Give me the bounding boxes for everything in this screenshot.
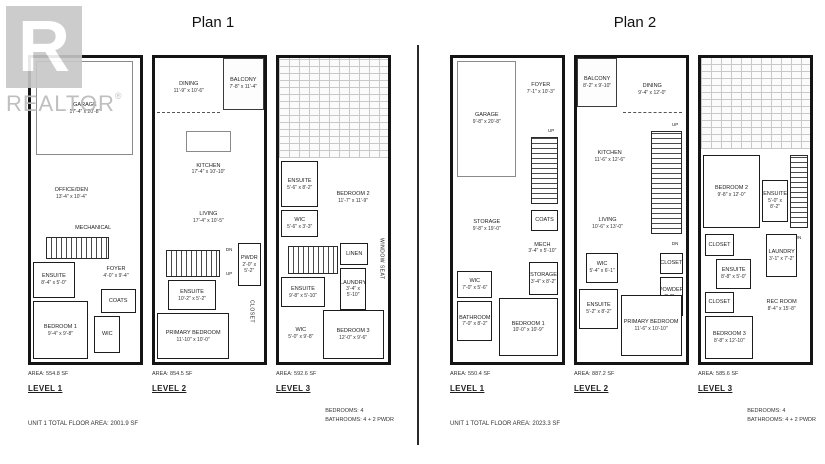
room-dimensions: 7'-8" x 11'-4"	[229, 84, 257, 90]
room-bathroom: BATHROOM7'-0" x 8'-2"	[457, 301, 492, 341]
room-foyer: FOYER7'-1" x 10'-3"	[523, 70, 559, 106]
room-label: FOYER	[107, 266, 126, 273]
roof-hatch	[701, 58, 810, 149]
room-label: COATS	[535, 217, 554, 224]
plan1-bedrooms: BEDROOMS: 4	[325, 407, 394, 416]
room-dimensions: 9'-4" x 9'-8"	[48, 331, 73, 337]
room-label: MECHANICAL	[75, 225, 111, 232]
plan2-level3-column: BEDROOM 29'-8" x 12'-0"ENSUITE5'-0" x 8'…	[698, 55, 813, 393]
stairs	[288, 246, 338, 273]
room-closet: CLOSET	[705, 292, 733, 313]
room-dimensions: 3'-4" x 5'-10"	[528, 248, 556, 254]
room-laundry: LAUNDRY3'-1" x 7'-2"	[766, 234, 797, 277]
room-label: LIVING	[598, 217, 616, 224]
room-label: OFFICE/DEN	[55, 187, 88, 194]
plan1-total-area: UNIT 1 TOTAL FLOOR AREA: 2001.9 SF	[28, 421, 138, 427]
room-label: REC ROOM	[767, 299, 797, 306]
room-label: UP	[548, 128, 554, 134]
room-dn: DN	[223, 243, 236, 255]
room-dimensions: 8'-2" x 9'-10"	[583, 83, 611, 89]
plan2-level3-floorplan: BEDROOM 29'-8" x 12'-0"ENSUITE5'-0" x 8'…	[698, 55, 813, 365]
room-dimensions: 11'-6" x 12'-6"	[595, 157, 625, 163]
plan2-level1-column: GARAGE9'-8" x 20'-8"FOYER7'-1" x 10'-3"U…	[450, 55, 565, 393]
plan2-level2-column: BALCONY8'-2" x 9'-10"DINING9'-4" x 12'-0…	[574, 55, 689, 393]
stairs	[790, 155, 807, 228]
room-label: ENSUITE	[42, 273, 66, 280]
room-ensuite: ENSUITE8'-4" x 5'-0"	[33, 262, 74, 298]
room-label: DN	[672, 241, 679, 247]
plan2-level2-floorplan: BALCONY8'-2" x 9'-10"DINING9'-4" x 12'-0…	[574, 55, 689, 365]
realtor-wordmark: REALTOR ®	[6, 91, 123, 117]
realtor-watermark: R REALTOR ®	[6, 6, 123, 117]
room-storage: STORAGE3'-4" x 8'-2"	[529, 262, 557, 295]
room-dimensions: 12'-0" x 9'-6"	[339, 335, 367, 341]
plan-divider	[417, 45, 419, 445]
room-dimensions: 9'-8" x 5'-10"	[289, 293, 317, 299]
room-pwdr: PWDR2'-0" x 5'-2"	[238, 243, 261, 286]
room-dimensions: 3'-4" x 5'-10"	[341, 286, 365, 298]
room-bedroom-3: BEDROOM 312'-0" x 9'-6"	[323, 310, 384, 359]
room-ensuite: ENSUITE5'-0" x 8'-2"	[762, 180, 788, 223]
room-bedroom-3: BEDROOM 38'-8" x 12'-10"	[705, 316, 753, 359]
room-living: LIVING10'-6" x 13'-0"	[581, 201, 633, 247]
plan2-level1-area: AREA: 550.4 SF	[450, 371, 565, 377]
room-laundry: LAUNDRY3'-4" x 5'-10"	[340, 268, 366, 311]
room-wic: WIC	[94, 316, 120, 352]
realtor-wordmark-text: REALTOR	[6, 91, 115, 117]
room-label: CLOSET	[248, 300, 254, 323]
room-dimensions: 7'-0" x 5'-6"	[462, 285, 487, 291]
room-closet: CLOSET	[660, 253, 683, 274]
room-label: ENSUITE	[288, 178, 312, 185]
plan1-level2-column: BALCONY7'-8" x 11'-4"DINING11'-9" x 10'-…	[152, 55, 267, 393]
room-foyer: FOYER4'-0" x 9'-4"	[96, 259, 135, 286]
room-coats: COATS	[101, 289, 136, 313]
room-label: DN	[226, 247, 233, 253]
plan1-level2-area: AREA: 854.5 SF	[152, 371, 267, 377]
room-kitchen: KITCHEN17'-4" x 10'-10"	[159, 152, 257, 185]
room-bedroom-2: BEDROOM 29'-8" x 12'-0"	[703, 155, 760, 228]
room-label: WIC	[469, 278, 480, 285]
room-dimensions: 10'-0" x 10'-9"	[513, 327, 544, 333]
plan1-bathrooms: BATHROOMS: 4 + 2 PWDR	[325, 416, 394, 425]
plan2-level-row: GARAGE9'-8" x 20'-8"FOYER7'-1" x 10'-3"U…	[450, 55, 820, 393]
room-window-seat: WINDOW SEAT	[376, 216, 387, 301]
room-label: ENSUITE	[722, 267, 746, 274]
room-dimensions: 13'-4" x 10'-4"	[56, 194, 87, 200]
room-label: MECH	[534, 242, 550, 249]
room-wic: WIC5'-0" x 9'-8"	[283, 313, 318, 353]
room-rec-room: REC ROOM8'-4" x 15'-8"	[758, 280, 806, 332]
room-balcony: BALCONY7'-8" x 11'-4"	[223, 58, 264, 110]
room-label: BEDROOM 1	[512, 321, 545, 328]
plan1-level2-label: LEVEL 2	[152, 384, 267, 393]
room-bedroom-1: BEDROOM 19'-4" x 9'-8"	[33, 301, 88, 359]
plan2-footer: UNIT 1 TOTAL FLOOR AREA: 2023.3 SF BEDRO…	[450, 393, 820, 439]
room-inner	[186, 131, 232, 152]
room-label: ENSUITE	[587, 302, 611, 309]
room-ensuite: ENSUITE9'-8" x 5'-10"	[281, 277, 325, 307]
stairs	[651, 131, 682, 234]
room-dimensions: 2'-0" x 5'-2"	[239, 262, 260, 274]
plan2-section: Plan 2 GARAGE9'-8" x 20'-8"FOYER7'-1" x …	[450, 8, 820, 439]
plan2-level3-area: AREA: 585.6 SF	[698, 371, 813, 377]
room-dimensions: 4'-0" x 9'-4"	[103, 273, 128, 279]
room-label: DINING	[643, 83, 662, 90]
room-primary-bedroom: PRIMARY BEDROOM11'-6" x 10'-10"	[621, 295, 682, 356]
room-dimensions: 3'-4" x 8'-2"	[531, 279, 556, 285]
room-label: BEDROOM 3	[337, 328, 370, 335]
plan1-bed-bath-summary: BEDROOMS: 4 BATHROOMS: 4 + 2 PWDR	[325, 407, 394, 425]
stairs	[166, 250, 221, 277]
plan1-level3-label: LEVEL 3	[276, 384, 391, 393]
room-dimensions: 7'-0" x 8'-2"	[462, 321, 487, 327]
room-garage: GARAGE9'-8" x 20'-8"	[457, 61, 516, 177]
room-mechanical: MECHANICAL	[59, 219, 127, 237]
room-label: BATHROOM	[459, 315, 490, 322]
room-bedroom-1: BEDROOM 110'-0" x 10'-9"	[499, 298, 558, 356]
room-linen: LINEN	[340, 243, 368, 264]
realtor-logo-icon: R	[6, 6, 82, 88]
room-storage: STORAGE9'-8" x 19'-0"	[457, 204, 516, 247]
room-label: STORAGE	[530, 272, 557, 279]
room-primary-bedroom: PRIMARY BEDROOM11'-10" x 10'-0"	[157, 313, 229, 359]
room-dimensions: 17'-4" x 10'-10"	[192, 169, 226, 175]
room-label: WIC	[295, 327, 306, 334]
stairs	[46, 237, 109, 258]
room-dimensions: 17'-4" x 10'-5"	[193, 218, 224, 224]
room-dimensions: 11'-10" x 10'-0"	[177, 337, 210, 343]
room-dimensions: 11'-6" x 10'-10"	[635, 326, 668, 332]
room-dn: DN	[669, 237, 682, 249]
plan1-level3-floorplan: ENSUITE5'-6" x 8'-2"BEDROOM 211'-7" x 11…	[276, 55, 391, 365]
room-label: WIC	[102, 331, 113, 338]
plan2-level2-area: AREA: 887.2 SF	[574, 371, 689, 377]
room-label: WINDOW SEAT	[378, 238, 384, 280]
room-label: BEDROOM 2	[715, 185, 748, 192]
room-label: BEDROOM 3	[713, 331, 746, 338]
room-mech: MECH3'-4" x 5'-10"	[527, 234, 558, 261]
room-label: LAUNDRY	[340, 280, 366, 287]
room-dimensions: 9'-8" x 20'-8"	[473, 119, 501, 125]
room-label: BALCONY	[584, 76, 610, 83]
room-label: ENSUITE	[763, 191, 787, 198]
room-dimensions: 10'-6" x 13'-0"	[592, 224, 623, 230]
room-wic: WIC5'-6" x 3'-3"	[281, 210, 318, 237]
room-dimensions: 11'-9" x 10'-6"	[174, 88, 204, 94]
room-label: UP	[226, 271, 232, 277]
room-dimensions: 8'-4" x 15'-8"	[768, 306, 796, 312]
room-dimensions: 8'-8" x 5'-0"	[721, 274, 746, 280]
room-dimensions: 9'-8" x 19'-0"	[473, 226, 501, 232]
room-label: LINEN	[346, 251, 362, 258]
room-dimensions: 10'-2" x 5'-2"	[178, 296, 206, 302]
plan2-level2-label: LEVEL 2	[574, 384, 689, 393]
plan1-level2-floorplan: BALCONY7'-8" x 11'-4"DINING11'-9" x 10'-…	[152, 55, 267, 365]
room-label: PWDR	[241, 255, 258, 262]
room-label: UP	[672, 122, 678, 128]
plan2-title: Plan 2	[450, 14, 820, 31]
room-label: PRIMARY BEDROOM	[166, 330, 221, 337]
room-label: GARAGE	[475, 112, 499, 119]
room-office-den: OFFICE/DEN13'-4" x 10'-4"	[33, 170, 109, 216]
room-label: WIC	[294, 217, 305, 224]
room-dimensions: 5'-6" x 8'-2"	[287, 185, 312, 191]
room-label: STORAGE	[473, 219, 500, 226]
room-dimensions: 3'-1" x 7'-2"	[769, 256, 794, 262]
room-label: PRIMARY BEDROOM	[624, 319, 679, 326]
room-dimensions: 8'-8" x 12'-10"	[714, 338, 745, 344]
room-kitchen: KITCHEN11'-6" x 12'-6"	[581, 134, 638, 180]
room-label: CLOSET	[709, 299, 731, 306]
room-label: LIVING	[199, 211, 217, 218]
room-dimensions: 5'-0" x 9'-8"	[288, 334, 313, 340]
room-label: POWDER	[660, 287, 683, 294]
plan2-level1-floorplan: GARAGE9'-8" x 20'-8"FOYER7'-1" x 10'-3"U…	[450, 55, 565, 365]
room-balcony: BALCONY8'-2" x 9'-10"	[577, 58, 617, 107]
floorplan-page: R REALTOR ® Plan 1 GARAGE17'-4" x 20'-8"…	[0, 0, 825, 464]
room-label: DINING	[179, 81, 198, 88]
room-dimensions: 11'-7" x 11'-9"	[338, 198, 368, 204]
room-up: UP	[223, 268, 236, 280]
room-ensuite: ENSUITE10'-2" x 5'-2"	[168, 280, 216, 310]
room-label: LAUNDRY	[769, 249, 795, 256]
room-coats: COATS	[531, 210, 557, 231]
room-living: LIVING17'-4" x 10'-5"	[159, 195, 257, 241]
plan1-level1-area: AREA: 554.8 SF	[28, 371, 143, 377]
room-closet: CLOSET	[242, 292, 261, 332]
stairs	[531, 137, 557, 204]
room-dimensions: 5'-0" x 8'-2"	[763, 198, 787, 210]
plan2-bathrooms: BATHROOMS: 4 + 2 PWDR	[747, 416, 816, 425]
room-ensuite: ENSUITE8'-8" x 5'-0"	[716, 259, 751, 289]
plan2-total-area: UNIT 1 TOTAL FLOOR AREA: 2023.3 SF	[450, 421, 560, 427]
room-dimensions: 5'-4" x 6'-1"	[589, 268, 614, 274]
room-dining: DINING11'-9" x 10'-6"	[157, 64, 220, 113]
room-label: WIC	[597, 261, 608, 268]
room-ensuite: ENSUITE5'-2" x 8'-2"	[579, 289, 618, 329]
plan2-bedrooms: BEDROOMS: 4	[747, 407, 816, 416]
room-label: KITCHEN	[598, 150, 622, 157]
realtor-logo-letter: R	[18, 11, 70, 83]
room-label: BEDROOM 1	[44, 324, 77, 331]
room-wic: WIC5'-4" x 6'-1"	[586, 253, 619, 283]
room-dining: DINING9'-4" x 12'-0"	[623, 67, 682, 113]
room-label: BEDROOM 2	[337, 191, 370, 198]
registered-trademark-icon: ®	[115, 91, 123, 101]
plan1-level3-column: ENSUITE5'-6" x 8'-2"BEDROOM 211'-7" x 11…	[276, 55, 391, 393]
room-up: UP	[669, 119, 682, 131]
room-ensuite: ENSUITE5'-6" x 8'-2"	[281, 161, 318, 207]
room-closet: CLOSET	[705, 234, 733, 255]
plan1-footer: UNIT 1 TOTAL FLOOR AREA: 2001.9 SF BEDRO…	[28, 393, 398, 439]
plan2-level1-label: LEVEL 1	[450, 384, 565, 393]
plan1-level1-label: LEVEL 1	[28, 384, 143, 393]
room-up: UP	[545, 125, 558, 137]
room-label: CLOSET	[660, 260, 682, 267]
room-dimensions: 5'-2" x 8'-2"	[586, 309, 611, 315]
room-label: FOYER	[531, 82, 550, 89]
room-dimensions: 7'-1" x 10'-3"	[527, 89, 555, 95]
roof-hatch	[279, 58, 388, 158]
room-label: KITCHEN	[196, 163, 220, 170]
room-label: BALCONY	[230, 77, 256, 84]
room-bedroom-2: BEDROOM 211'-7" x 11'-9"	[323, 170, 384, 225]
room-dimensions: 5'-6" x 3'-3"	[287, 224, 312, 230]
room-dimensions: 9'-8" x 12'-0"	[718, 192, 746, 198]
room-wic: WIC7'-0" x 5'-6"	[457, 271, 492, 298]
room-dimensions: 9'-4" x 12'-0"	[638, 90, 666, 96]
plan2-bed-bath-summary: BEDROOMS: 4 BATHROOMS: 4 + 2 PWDR	[747, 407, 816, 425]
room-label: COATS	[109, 298, 128, 305]
room-dimensions: 8'-4" x 5'-0"	[41, 280, 66, 286]
plan1-level3-area: AREA: 592.6 SF	[276, 371, 391, 377]
room-label: ENSUITE	[291, 286, 315, 293]
room-label: ENSUITE	[180, 289, 204, 296]
plan2-level3-label: LEVEL 3	[698, 384, 813, 393]
room-label: CLOSET	[709, 242, 731, 249]
